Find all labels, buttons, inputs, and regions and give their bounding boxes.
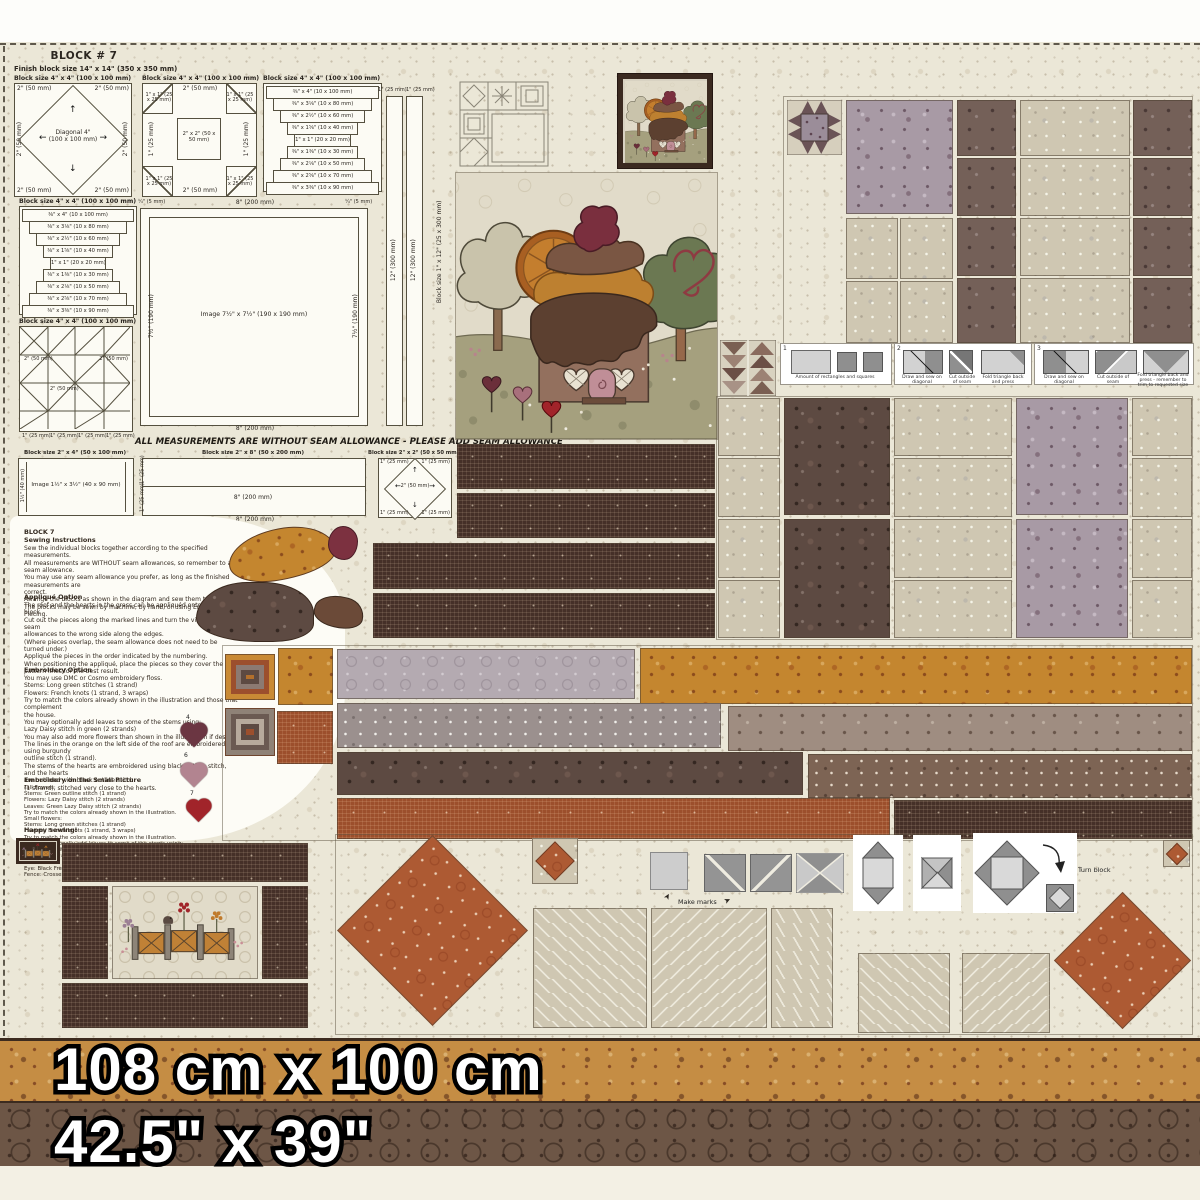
measure-label: 2" (50 mm) [17,86,51,92]
block2x4-diagram: Image 1½" x 3½" (40 x 90 mm) 1½" (40 mm) [18,458,134,516]
fabric-piece [894,580,1012,638]
fabric-piece [900,218,953,279]
block2x8-diagram: 8" (200 mm) 1" (25 mm) 1" (25 mm) [142,458,366,516]
fabric-strip [373,593,715,638]
measure-label: 7½" (190 mm) [353,291,359,341]
fabric-piece [784,519,890,638]
fabric-piece [1016,398,1128,515]
fabric-piece [784,398,890,515]
measure-label: 1" x 1" (25 x 25 mm) [225,177,255,188]
instructions-heading: BLOCK 7 [24,528,54,536]
triangle-piece [533,908,647,1028]
fabric-piece [62,886,108,979]
step-caption: Fold triangle back and press [979,375,1027,385]
star-block [787,100,842,155]
cut-line-top [0,43,1200,45]
measure-label: 8" (200 mm) [200,426,310,432]
fabric-piece [957,158,1016,216]
fabric-strip [808,754,1192,798]
arrow-left-icon: ← [395,483,401,490]
measure-label: 1" (25 mm) [380,460,409,465]
fabric-piece [894,398,1012,456]
measure-label: 1" (25 mm) [406,88,435,93]
fabric-panel: BLOCK # 7 Finish block size 14" x 14" (3… [0,0,1200,1200]
measure-label: 1½" (40 mm) [21,469,26,503]
size-imperial-fill: 42.5" x 39" [54,1108,372,1175]
fabric-strip [640,648,1192,704]
fabric-strip [337,703,721,748]
fabric-piece [957,278,1016,343]
fabric-piece [1132,458,1192,517]
fabric-strip [457,444,715,489]
step-box-2: 2 Draw and sew on diagonal Cut outside o… [894,343,1032,385]
fence-picture-panel [112,886,258,979]
fabric-piece [1133,100,1192,156]
step-caption: Draw and sew on diagonal [1037,375,1091,385]
geese-block [720,340,776,396]
measure-label: 1" (25 mm) [378,88,407,93]
house-scene-small [625,81,707,163]
diagonal-label: Diagonal 4" (100 x 100 mm) [43,130,103,144]
arrow-down-icon: ↓ [412,502,418,509]
diagramC-header: Block size 4" x 4" (100 x 100 mm) [263,75,376,82]
fabric-strip [337,752,803,795]
fabric-strip [457,493,715,538]
closing-text: Happy sewing! [24,826,77,834]
measure-label: 1" (25 mm) [141,455,146,484]
logcabin-block-gray [225,708,275,756]
measure-label: 1" x 1" (25 x 25 mm) [144,177,174,188]
measure-label: 2" (50 mm) [99,357,128,362]
fabric-piece [1133,158,1192,216]
embroidery-title: Embroidery Option [24,666,92,674]
measure-label: 1" (25 mm) [78,434,107,439]
fabric-piece [894,458,1012,517]
page-title: BLOCK # 7 [14,50,154,62]
fabric-piece [1020,218,1130,276]
measure-label: 1" (25 mm) [244,122,250,156]
fabric-piece [1020,100,1130,156]
turned-block [1046,884,1074,912]
measure-label: 12" (300 mm) [391,237,397,283]
small-picture-title: Embroidery on the Small Picture [24,776,141,784]
step-caption: Amount of rectangles and squares [785,375,885,380]
step-shape [1095,350,1137,374]
measure-label: 2" (50 mm) [17,122,23,156]
block2x2-diagram: 1" (25 mm) 1" (25 mm) 1" (25 mm) 1" (25 … [378,458,452,518]
heart-number: 4 [186,714,190,721]
logcabin-diagram-2: ⅜" x 4" (10 x 100 mm) ⅜" x 3⅛" (10 x 80 … [19,206,137,315]
heart-number: 7 [190,790,194,797]
measure-label: 1" (25 mm) [141,483,146,512]
step-shape [863,352,883,372]
logcabin-block-orange [225,654,275,700]
step-caption: Draw and sew on diagonal [897,375,947,385]
step-box-3: 3 Draw and sew on diagonal Cut outside o… [1034,343,1194,385]
fabric-piece [894,519,1012,578]
step-shape [903,350,943,374]
fabric-piece [846,218,898,279]
turned-block-diamond [1049,887,1072,910]
measure-label: 1" (25 mm) [106,434,135,439]
gray-square [650,852,688,890]
step-shape [791,350,831,374]
image-frame-diagram: 7½" (190 mm) 7½" (190 mm) Image 7½" x 7½… [140,208,368,426]
make-marks-label: Make marks [678,898,717,906]
diagramA-header: Block size 4" x 4" (100 x 100 mm) [14,75,130,82]
diagramE-header: Block size 4" x 4" (100 x 100 mm) [19,318,131,325]
fabric-piece [957,218,1016,276]
picture-thumbnail [16,838,60,864]
frame-line [125,462,126,512]
square-in-square-diagram: 1" x 1" (25 x 25 mm) 1" x 1" (25 x 25 mm… [142,83,257,197]
step-shape [949,350,973,374]
center-label: 2" x 2" (50 x 50 mm) [179,132,219,144]
house-scene-main [456,173,717,439]
size-metric-fill: 108 cm x 100 cm [54,1036,543,1103]
fabric-piece [900,281,953,343]
fabric-piece [1020,158,1130,216]
fabric-piece [718,398,780,456]
step-shape [981,350,1025,374]
mid-line [143,486,365,487]
fabric-piece [1020,278,1130,343]
measure-label: 1" (25 mm) [50,434,79,439]
measure-label: 12" (300 mm) [411,237,417,283]
diamond-square-tiny [1163,840,1190,867]
fabric-piece [1132,398,1192,456]
house-panel-main [455,172,718,440]
fabric-piece [957,100,1016,156]
turn-block-label: Turn block [1078,866,1111,874]
measure-label: 1" (25 mm) [22,434,51,439]
strip-label: ⅜" x 3⅜" (10 x 90 mm) [22,305,134,318]
diagramD-header: Block size 4" x 4" (100 x 100 mm) [19,198,131,205]
applique-piece-burgundy [328,526,358,560]
selvage-strip-top [0,0,1200,42]
measure-label: 2" (50 mm) [180,86,220,92]
strip-label: ⅜" x 3⅜" (10 x 90 mm) [266,182,379,195]
measure-label: 7½" (190 mm) [149,291,155,341]
step-caption: Cut outside of seam [1093,375,1133,385]
measure-label: 2" (50 mm) [180,188,220,194]
image-size-label: Image 7½" x 7½" (190 x 190 mm) [184,311,324,318]
image-small-label: Image 1½" x 3½" (40 x 90 mm) [31,482,121,488]
fabric-strip [337,798,890,839]
sashing-strip: 12" (300 mm) [406,96,423,426]
fabric-piece [718,580,780,638]
fabric-strip [728,706,1192,751]
framed-house-small [617,73,713,169]
step-box-1: 1 Amount of rectangles and squares [780,343,892,385]
arrow-right-icon: → [429,483,435,490]
fabric-piece [1016,519,1128,638]
sashing-block-label: Block size 1" x 12" (25 x 300 mm) [437,203,443,303]
fabric-piece [718,519,780,578]
sashing-strip: 12" (300 mm) [386,96,403,426]
fabric-strip [337,649,635,699]
diagonal-mm: (100 x 100 mm) [49,136,98,143]
fabric-piece [277,711,333,764]
heart-number: 6 [184,752,188,759]
sewing-title: Sewing Instructions [24,536,96,544]
fabric-piece [1133,218,1192,276]
geese-diagram: 2" (50 mm) 2" (50 mm) 2" (50 mm) [19,326,133,432]
fence-scene [113,887,257,978]
size-imperial-text: 42.5" x 39" 42.5" x 39" [54,1112,372,1172]
diamond-square-small [532,838,578,884]
measure-label: 1" x 1" (25 x 25 mm) [225,93,255,104]
step-number: 3 [1037,345,1041,352]
applique-piece-roof [196,582,314,642]
fabric-piece [846,100,953,214]
assembly-diagram [458,80,550,168]
measure-label: 2" (50 mm) [95,188,129,194]
fabric-piece [262,886,308,979]
step-number: 1 [783,345,787,352]
arrow-down-icon: ↓ [69,165,77,174]
measure-label: 1" (25 mm) [421,511,450,516]
arrow-up-icon: ↑ [412,467,418,474]
page-subtitle: Finish block size 14" x 14" (350 x 350 m… [14,65,194,73]
rust-diamond-inner [535,841,575,881]
step-shape [1043,350,1089,374]
fabric-piece [1132,580,1192,638]
geese-lines [20,327,130,429]
fabric-strip [62,983,308,1028]
sis-diagram-2 [913,835,961,911]
step-number: 2 [897,345,901,352]
applique-text: The roof and the hearts in the grass can… [24,602,224,675]
step-shape [837,352,857,372]
fabric-strip [373,543,715,589]
block2x8-header: Block size 2" x 8" (50 x 200 mm) [142,450,364,456]
measure-label: 1" (25 mm) [149,122,155,156]
fence-scene-thumb [20,842,56,860]
rust-diamond-inner [1166,843,1189,866]
fabric-piece [278,648,333,705]
measure-label: 8" (200 mm) [200,200,310,206]
triangle-piece [771,908,833,1028]
measure-label: 8" (200 mm) [223,495,283,501]
triangle-piece [651,908,767,1028]
cut-line-left [3,46,5,1036]
fabric-piece [1132,519,1192,578]
triangle-piece [858,953,950,1033]
logcabin-diagram: ⅜" x 4" (10 x 100 mm) ⅜" x 3⅛" (10 x 80 … [263,83,382,192]
measure-label: 1" (25 mm) [380,511,409,516]
marked-square [750,854,792,892]
sis-diagram-1 [853,835,903,911]
block2x4-header: Block size 2" x 4" (50 x 100 mm) [18,450,132,456]
marked-square [704,854,746,892]
measure-label: 2" (50 mm) [50,387,79,392]
fabric-piece [846,281,898,343]
measure-label: ¼" (5 mm) [138,200,165,205]
measure-label: 2" (50 mm) [95,86,129,92]
measure-label: 1" (25 mm) [421,460,450,465]
applique-title: Appliqué Option [24,593,82,601]
hourglass-square [796,853,844,893]
fabric-strip [62,843,308,882]
step-shape [1143,350,1189,374]
measure-label: 1" x 1" (25 x 25 mm) [144,93,174,104]
size-metric-text: 108 cm x 100 cm 108 cm x 100 cm [54,1040,543,1100]
step-caption: Cut outside of seam [947,375,977,385]
measure-label: 2" (50 mm) [17,188,51,194]
arrow-right-icon: → [99,134,107,143]
measure-label: 2" (50 mm) [123,122,129,156]
arrow-left-icon: ← [39,134,47,143]
triangle-piece [962,953,1050,1033]
measure-label: ¼" (5 mm) [345,200,372,205]
diagramB-header: Block size 4" x 4" (100 x 100 mm) [142,75,255,82]
fabric-piece [718,458,780,517]
fabric-piece [1133,278,1192,343]
step-caption: Fold triangle back and press - remember … [1135,373,1191,388]
measure-label: 2" (50 mm) [24,357,53,362]
block2x2-header: Block size 2" x 2" (50 x 50 mm) [368,450,454,456]
diamond-diagram: 2" (50 mm) 2" (50 mm) 2" (50 mm) 2" (50 … [14,83,132,197]
arrow-up-icon: ↑ [69,106,77,115]
